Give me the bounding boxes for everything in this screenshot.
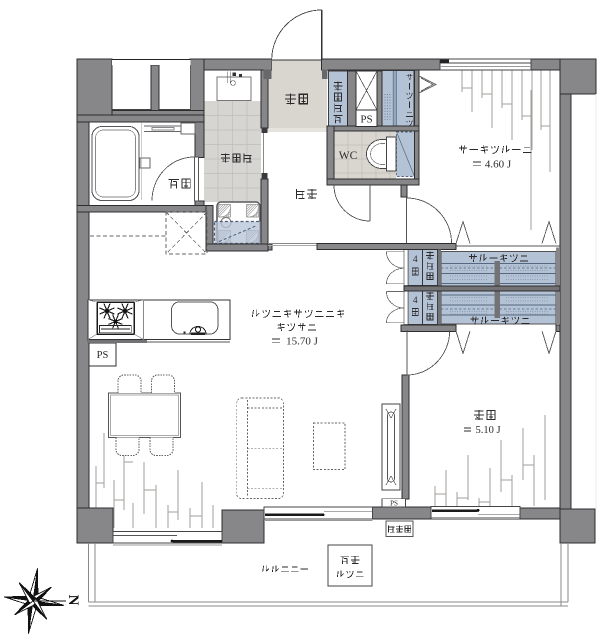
svg-text:15.70 J: 15.70 J (286, 336, 319, 348)
svg-text:5.10 J: 5.10 J (475, 425, 500, 436)
svg-text:N: N (65, 595, 81, 606)
svg-text:PS: PS (360, 114, 372, 126)
svg-text:4: 4 (413, 255, 418, 265)
svg-text:PS: PS (390, 500, 398, 508)
svg-text:4.60 J: 4.60 J (485, 159, 512, 171)
svg-text:WC: WC (339, 150, 358, 162)
svg-text:PS: PS (97, 350, 109, 361)
svg-text:4: 4 (413, 296, 418, 306)
